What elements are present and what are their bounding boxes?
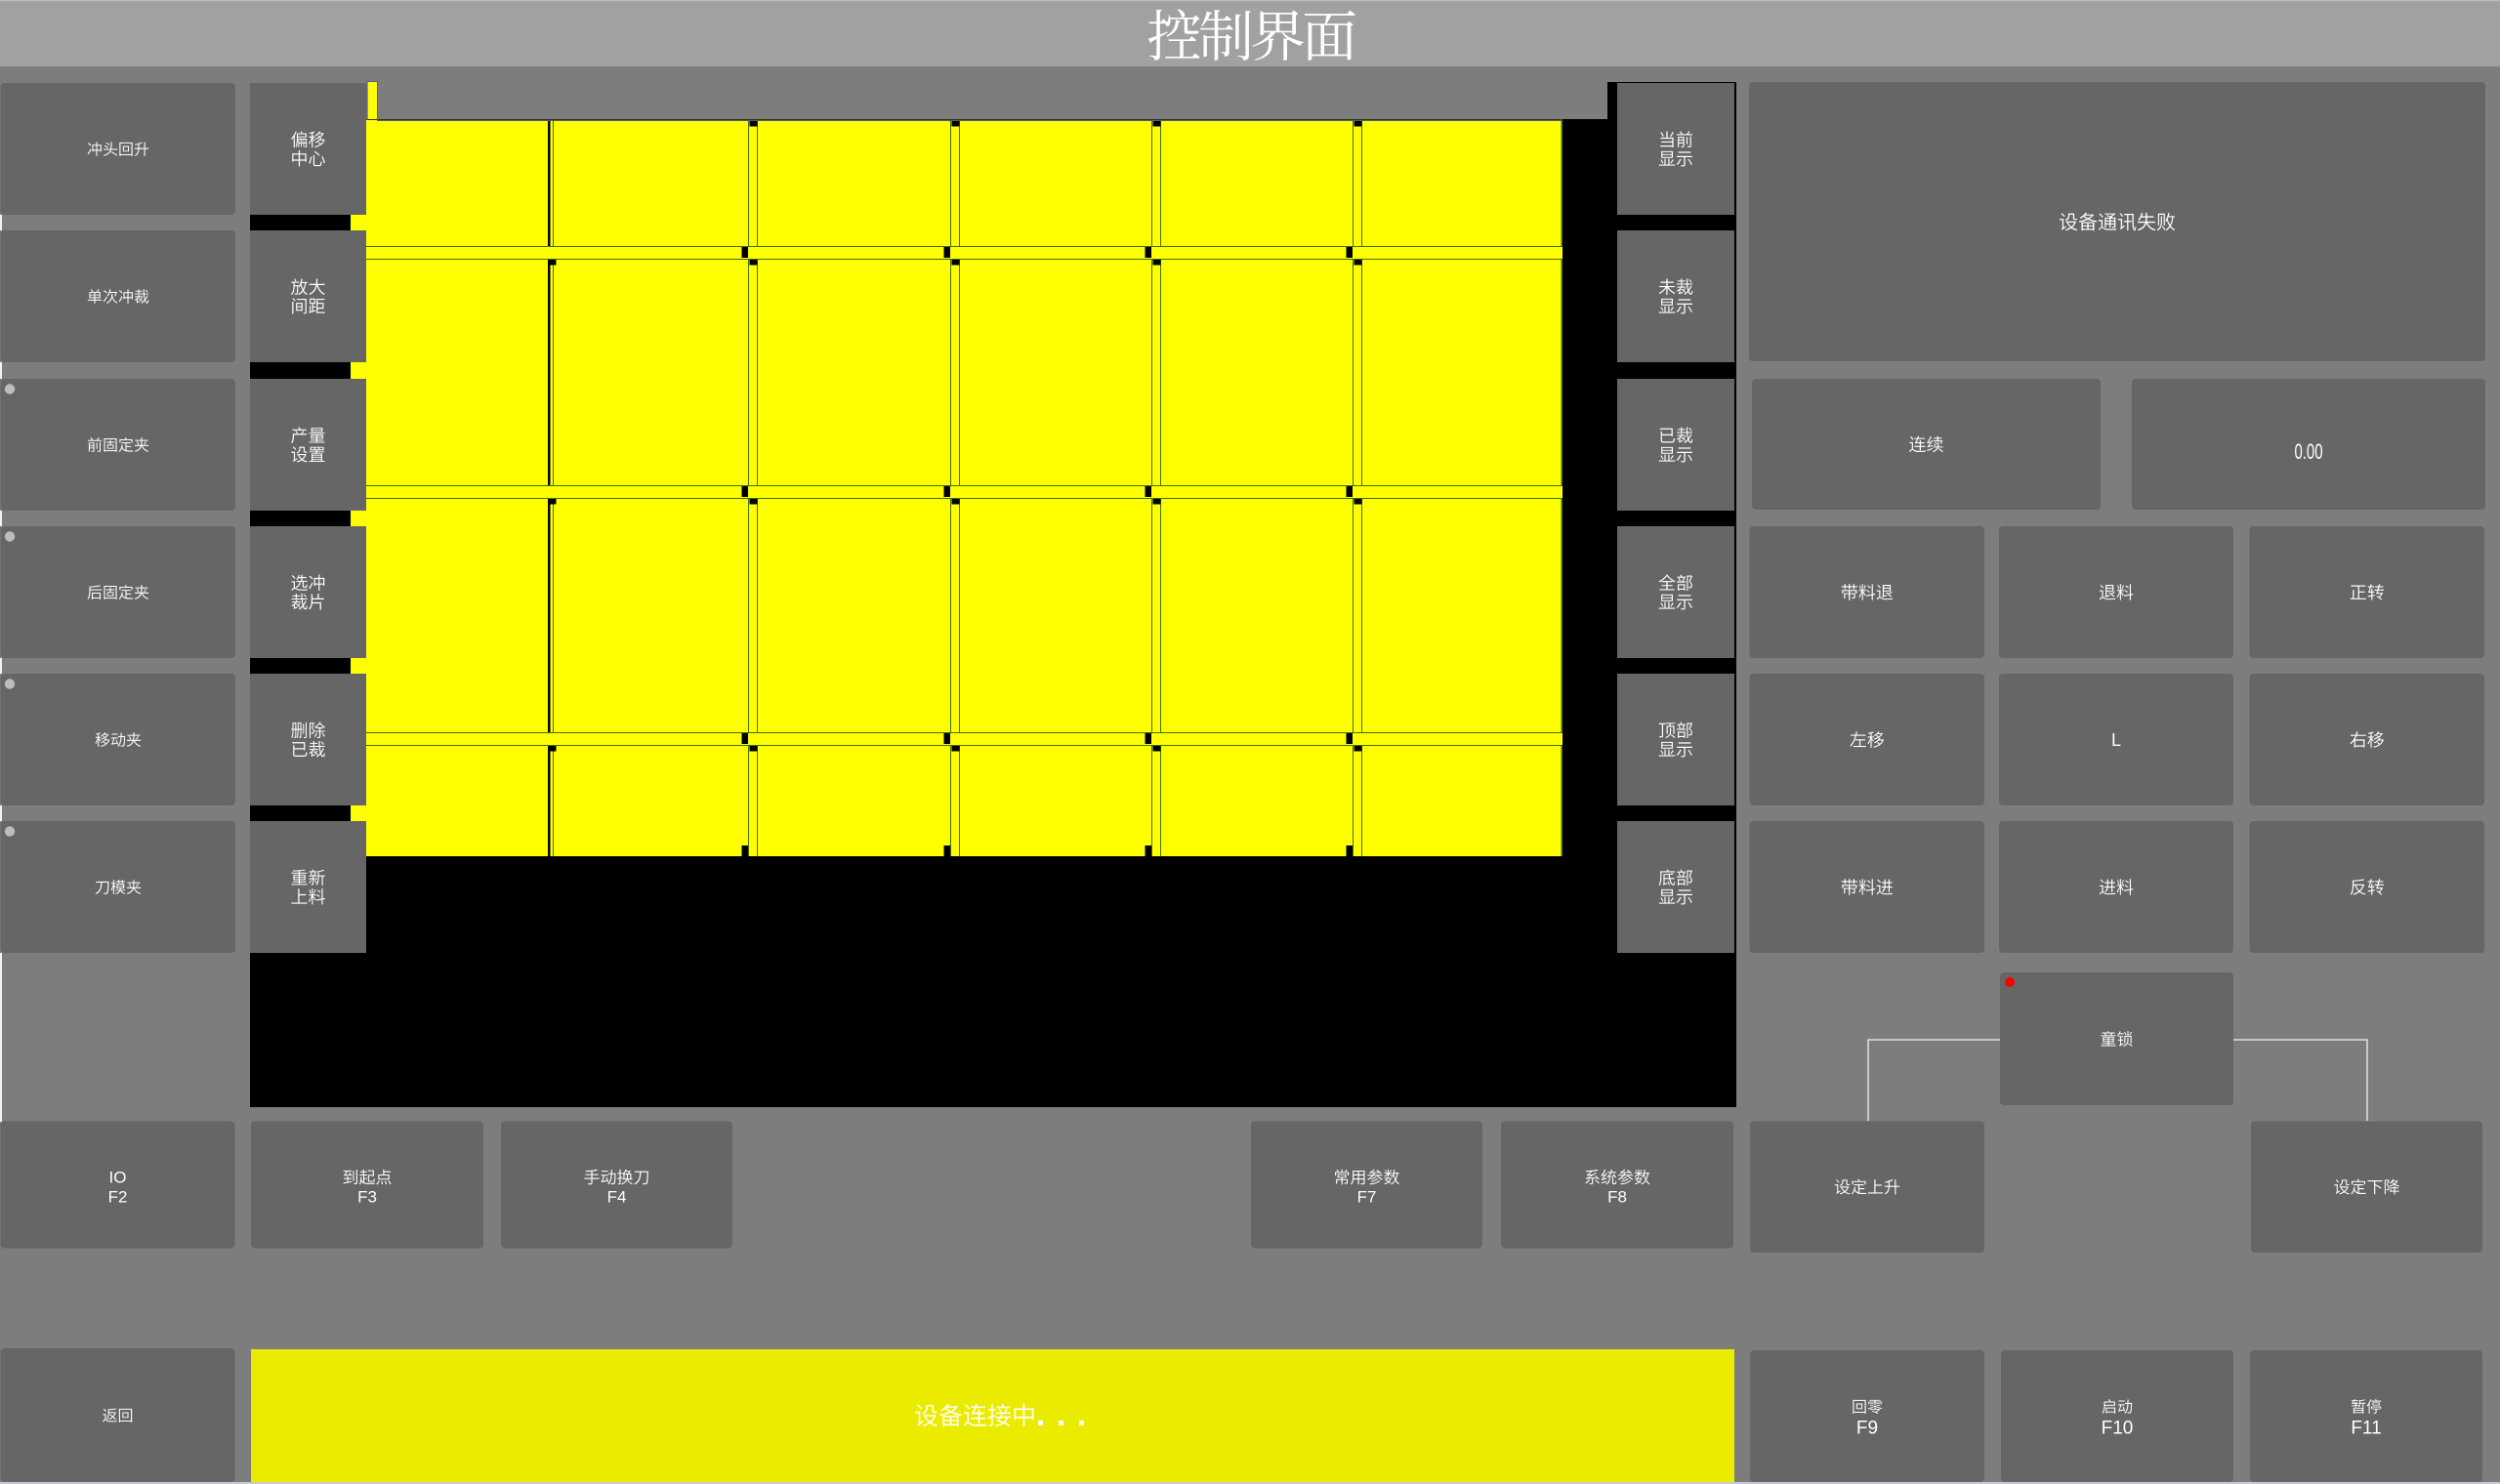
svg-text:F9: F9 xyxy=(1856,1419,1878,1439)
svg-text:F7: F7 xyxy=(1357,1188,1377,1207)
svg-text:IO: IO xyxy=(109,1169,127,1187)
svg-text:F2: F2 xyxy=(108,1188,128,1207)
svg-text:F3: F3 xyxy=(357,1188,377,1207)
svg-text:F10: F10 xyxy=(2102,1419,2134,1439)
svg-text:L: L xyxy=(2111,730,2121,750)
svg-text:F4: F4 xyxy=(607,1188,627,1207)
svg-text:0.00: 0.00 xyxy=(2295,439,2323,464)
svg-text:F11: F11 xyxy=(2351,1419,2381,1439)
svg-text:F8: F8 xyxy=(1607,1188,1627,1207)
